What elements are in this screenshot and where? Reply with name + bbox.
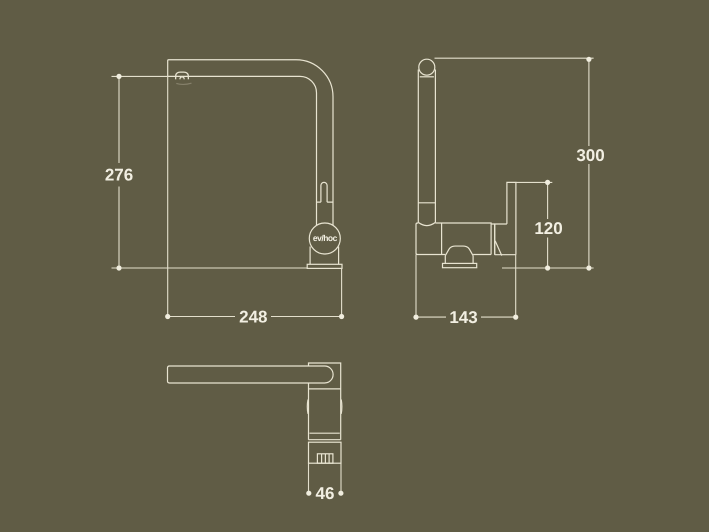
svg-text:46: 46 <box>316 484 335 503</box>
svg-text:120: 120 <box>534 219 562 238</box>
svg-text:143: 143 <box>449 308 477 327</box>
svg-text:276: 276 <box>105 166 133 185</box>
svg-text:ev/hoc: ev/hoc <box>313 233 338 243</box>
svg-text:248: 248 <box>239 308 267 327</box>
svg-text:300: 300 <box>576 146 604 165</box>
